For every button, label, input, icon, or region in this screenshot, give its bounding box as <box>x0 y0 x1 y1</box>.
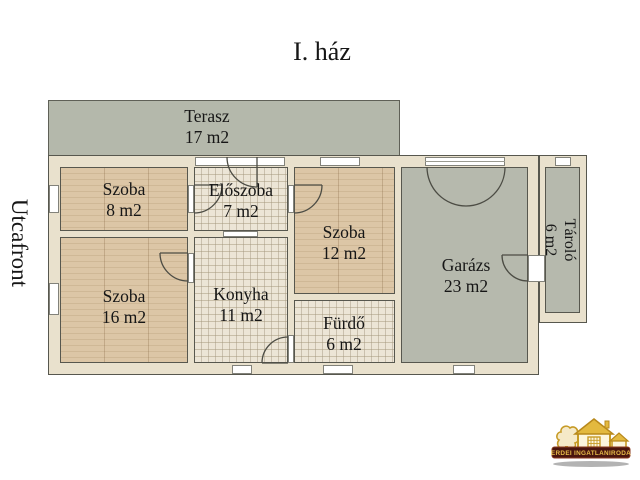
window <box>323 365 353 374</box>
room-label-konyha: Konyha 11 m2 <box>213 284 268 326</box>
window <box>320 157 360 166</box>
window <box>49 283 59 315</box>
room-label-garazs: Garázs 23 m2 <box>442 255 491 297</box>
page-title: I. ház <box>293 37 351 67</box>
room-name: Előszoba <box>209 180 273 201</box>
room-area: 17 m2 <box>184 127 229 148</box>
room-area: 11 m2 <box>213 305 268 326</box>
room-label-szoba-8: Szoba 8 m2 <box>103 179 146 221</box>
room-area: 7 m2 <box>209 201 273 222</box>
room-area: 6 m2 <box>323 334 365 355</box>
street-front-label: Utcafront <box>6 199 32 287</box>
room-name: Szoba <box>322 222 366 243</box>
door-opening <box>188 185 194 213</box>
room-area: 23 m2 <box>442 276 491 297</box>
room-label-tarolo: Tároló 6 m2 <box>541 219 579 262</box>
room-name: Terasz <box>184 106 229 127</box>
door-opening <box>288 335 294 363</box>
garage-door-opening <box>425 157 505 166</box>
room-name: Szoba <box>102 286 146 307</box>
room-area: 8 m2 <box>103 200 146 221</box>
room-label-furdo: Fürdő 6 m2 <box>323 313 365 355</box>
entrance-opening <box>195 157 285 166</box>
window <box>49 185 59 213</box>
room-label-terasz: Terasz 17 m2 <box>184 106 229 148</box>
floorplan-page: { "title": "I. ház", "side_label": "Utca… <box>0 0 640 480</box>
window <box>555 157 571 166</box>
room-area: 16 m2 <box>102 307 146 328</box>
room-label-szoba-16: Szoba 16 m2 <box>102 286 146 328</box>
agency-logo: ERDEI INGATLANIRODA <box>550 413 632 471</box>
window <box>232 365 252 374</box>
door-opening <box>223 231 258 237</box>
logo-shadow <box>553 461 629 467</box>
room-name: Garázs <box>442 255 491 276</box>
window <box>453 365 475 374</box>
room-area: 12 m2 <box>322 243 366 264</box>
room-name: Tároló <box>560 219 579 262</box>
logo-banner: ERDEI INGATLANIRODA <box>551 447 631 458</box>
room-area: 6 m2 <box>541 219 560 262</box>
room-name: Szoba <box>103 179 146 200</box>
room-label-szoba-12: Szoba 12 m2 <box>322 222 366 264</box>
logo-text: ERDEI INGATLANIRODA <box>551 450 631 457</box>
door-opening <box>188 253 194 283</box>
room-name: Fürdő <box>323 313 365 334</box>
room-name: Konyha <box>213 284 268 305</box>
room-label-eloszoba: Előszoba 7 m2 <box>209 180 273 222</box>
door-opening <box>288 185 294 213</box>
